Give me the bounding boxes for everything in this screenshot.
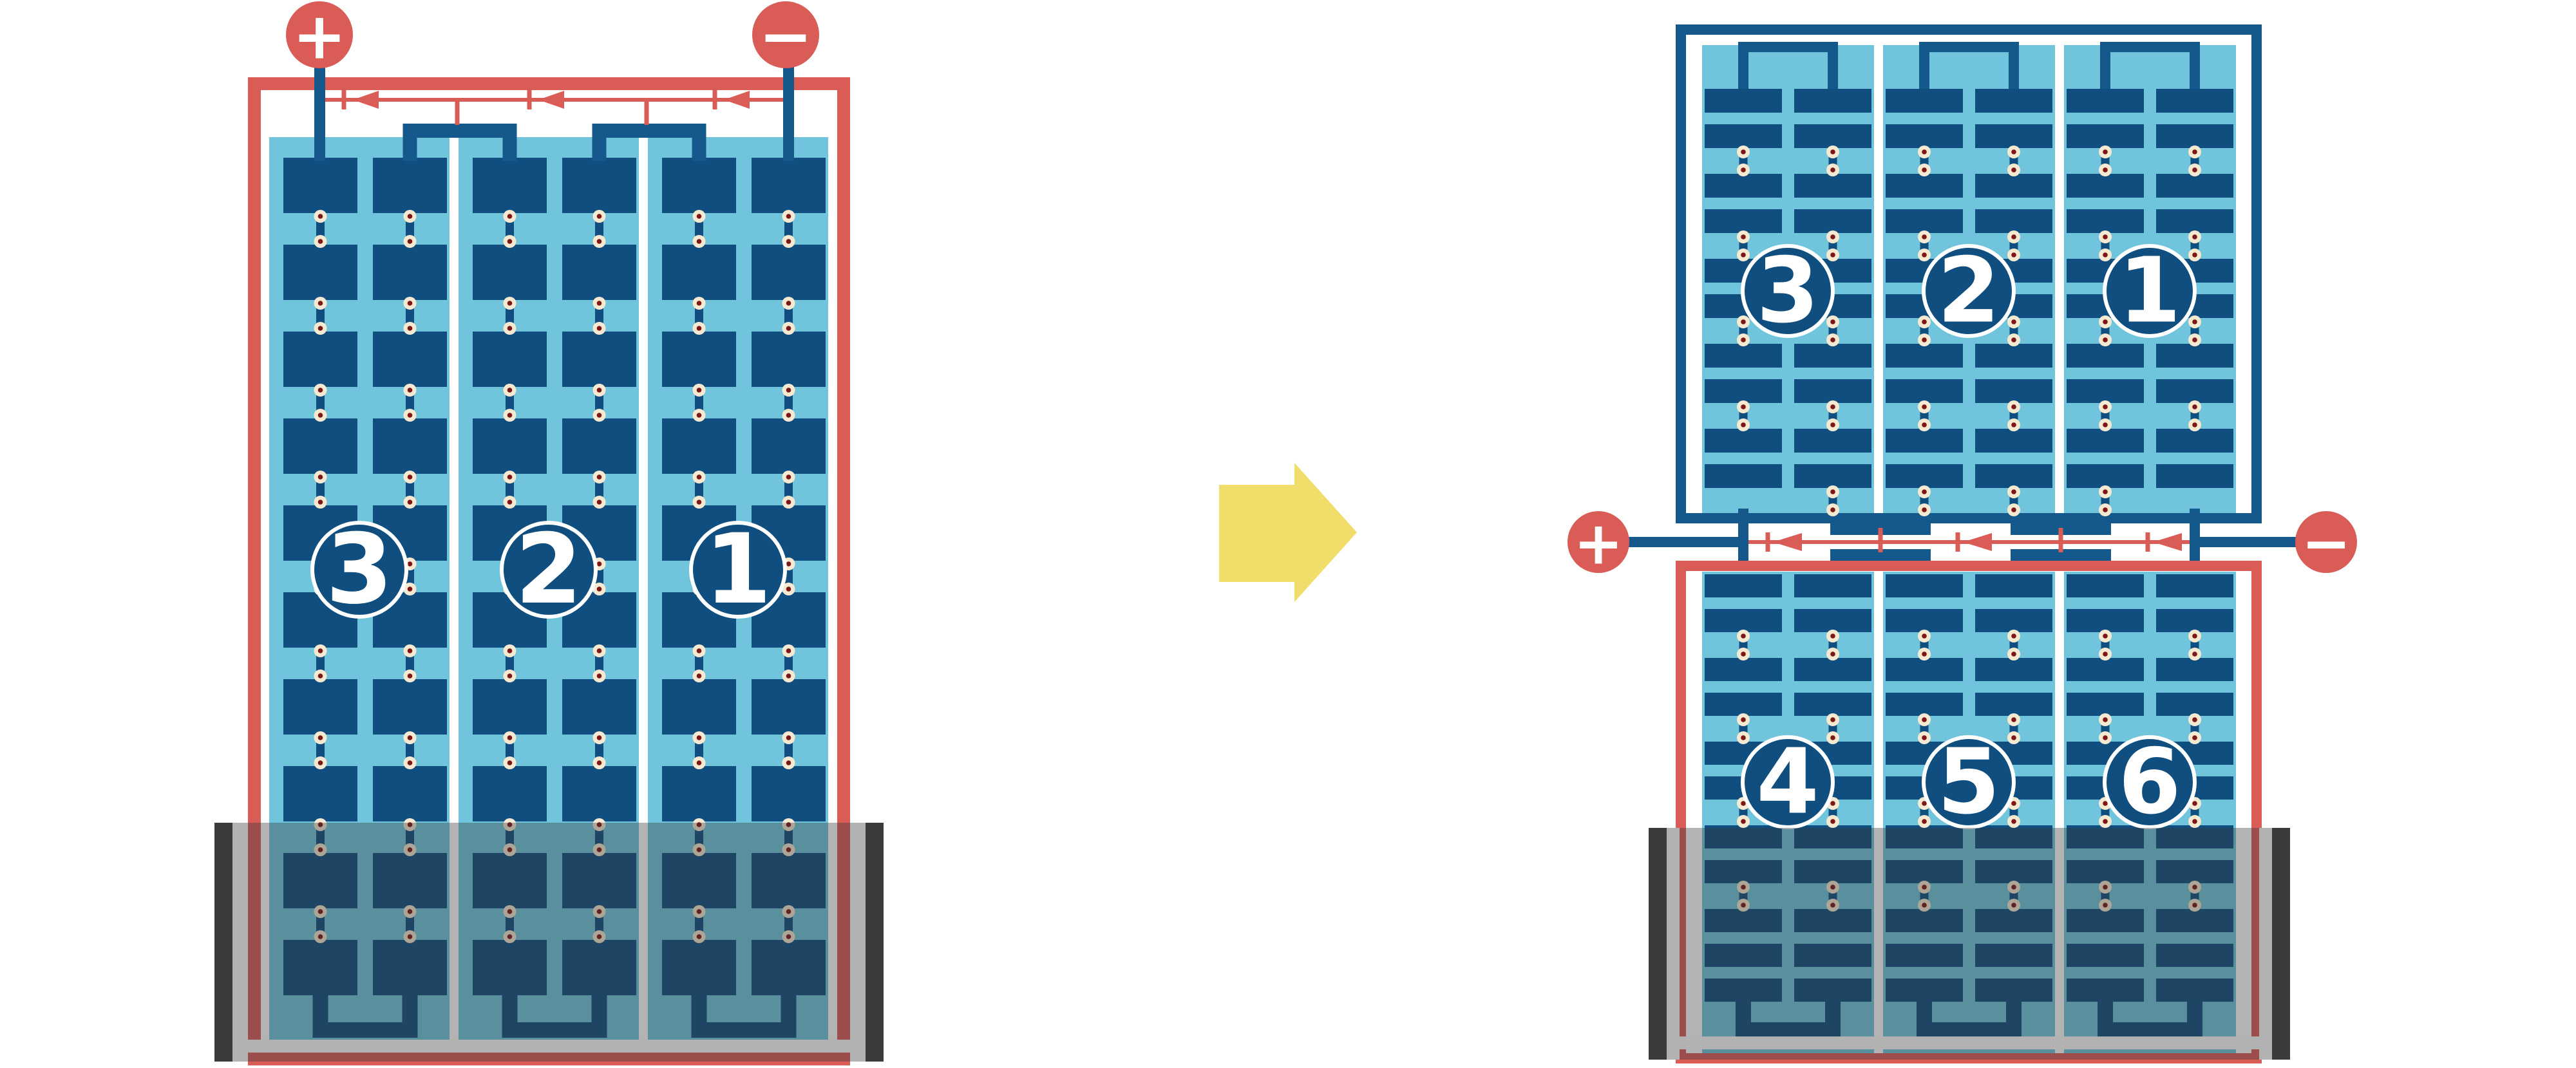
- svg-text:−: −: [759, 0, 813, 74]
- cell-label: 2: [1937, 239, 2000, 344]
- tray-end-bar: [214, 823, 232, 1062]
- current-flow-wire: [325, 90, 783, 125]
- diagram-canvas: 3 2 1 + −: [0, 0, 2576, 1068]
- positive-post: [1738, 509, 1748, 561]
- cell-separator: [1874, 45, 1883, 513]
- positive-terminal-icon: +: [286, 0, 353, 74]
- right-tray: [1649, 828, 2290, 1060]
- negative-bus: [2199, 537, 2303, 547]
- transform-arrow-icon: [1219, 463, 1357, 602]
- left-tray: [214, 823, 884, 1062]
- cell-number-badge: 3: [312, 514, 406, 626]
- current-flow-wire: [1748, 528, 2190, 552]
- tray-end-bar: [866, 823, 884, 1062]
- cell-label: 2: [515, 514, 582, 626]
- cell-number-badge: 1: [691, 514, 785, 626]
- cell-label: 6: [2118, 730, 2181, 835]
- left-battery: 3 2 1 + −: [214, 0, 884, 1062]
- tray-end-bar: [2272, 828, 2290, 1060]
- negative-post: [783, 66, 794, 161]
- positive-terminal-icon: +: [1567, 509, 1629, 578]
- tray-shade: [1649, 828, 2290, 1060]
- cell-label: 3: [326, 514, 393, 626]
- battery-diagram: 3 2 1 + −: [0, 0, 2576, 1068]
- tray-end-bar: [1649, 828, 1667, 1060]
- positive-post: [314, 66, 325, 161]
- cell-separator: [2055, 45, 2064, 513]
- negative-post: [2190, 509, 2200, 561]
- cell-label: 5: [1937, 730, 2000, 835]
- negative-terminal-icon: −: [2295, 509, 2357, 578]
- negative-terminal-icon: −: [752, 0, 819, 74]
- svg-text:+: +: [1573, 509, 1623, 578]
- cell-label: 4: [1756, 730, 1819, 835]
- cell-number-badge: 2: [502, 514, 596, 626]
- svg-text:−: −: [2301, 509, 2351, 578]
- svg-text:+: +: [292, 0, 346, 74]
- tray-shade: [214, 823, 884, 1062]
- cell-label: 3: [1756, 239, 1819, 344]
- cell-label: 1: [705, 514, 772, 626]
- positive-bus: [1628, 537, 1739, 547]
- right-top-block: 3 2 1: [1681, 30, 2257, 518]
- cell-label: 1: [2118, 239, 2181, 344]
- right-battery: 3 2 1: [1567, 30, 2357, 1060]
